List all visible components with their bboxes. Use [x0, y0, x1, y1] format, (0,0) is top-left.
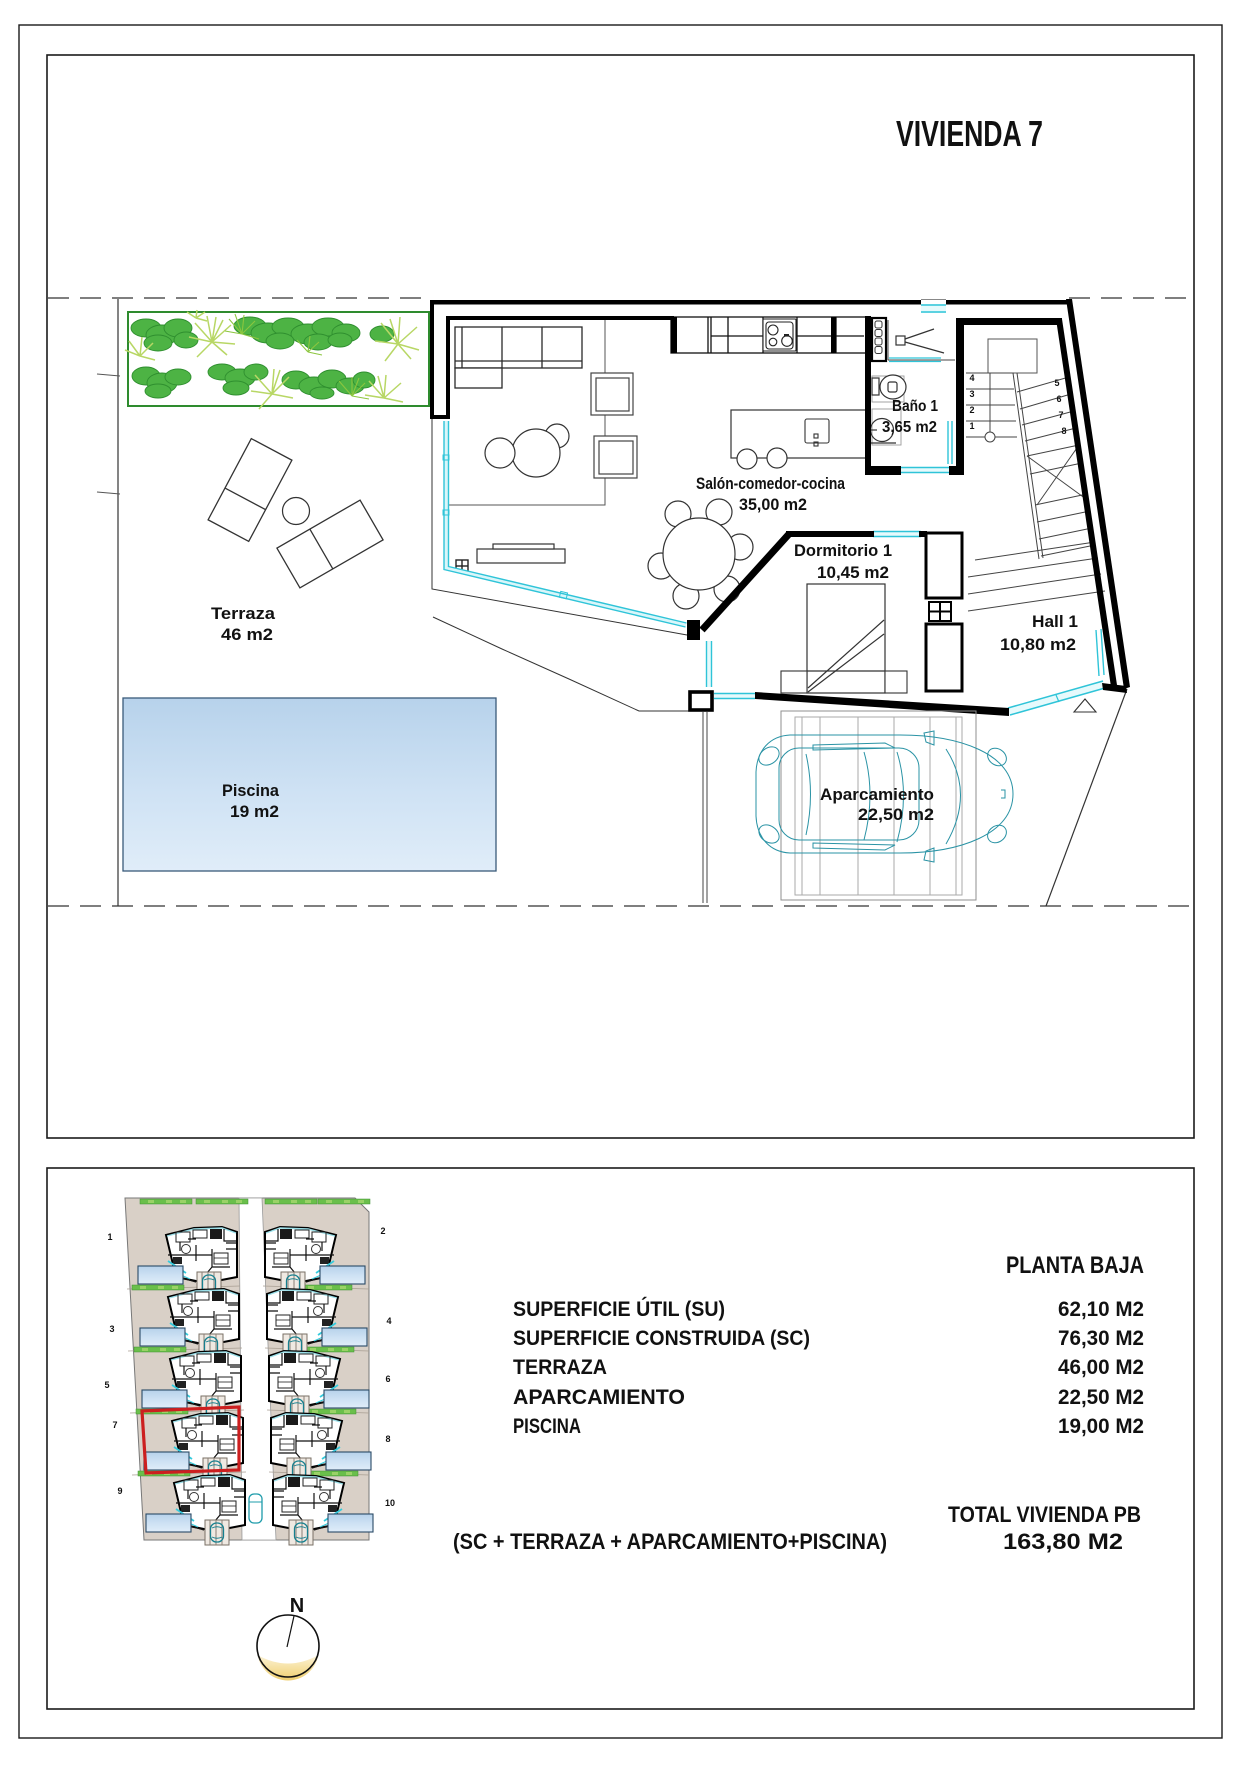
svg-text:Aparcamiento: Aparcamiento [820, 785, 934, 804]
svg-text:2: 2 [969, 405, 974, 415]
svg-text:163,80 M2: 163,80 M2 [1003, 1529, 1123, 1554]
svg-text:6: 6 [1056, 394, 1061, 404]
svg-text:19,00 M2: 19,00 M2 [1058, 1415, 1144, 1438]
svg-text:(SC + TERRAZA + APARCAMIENTO+P: (SC + TERRAZA + APARCAMIENTO+PISCINA) [453, 1529, 887, 1554]
svg-text:Hall 1: Hall 1 [1032, 612, 1078, 631]
svg-text:5: 5 [1054, 378, 1059, 388]
svg-text:46,00 M2: 46,00 M2 [1058, 1356, 1144, 1379]
svg-text:3: 3 [969, 389, 974, 399]
svg-text:Terraza: Terraza [211, 604, 276, 623]
svg-text:22,50 M2: 22,50 M2 [1058, 1386, 1144, 1409]
svg-text:Piscina: Piscina [222, 781, 280, 800]
svg-text:1: 1 [107, 1232, 112, 1242]
svg-text:6: 6 [385, 1374, 390, 1384]
svg-text:SUPERFICIE ÚTIL (SU): SUPERFICIE ÚTIL (SU) [513, 1297, 725, 1321]
svg-text:10,80 m2: 10,80 m2 [1000, 635, 1076, 654]
svg-text:N: N [290, 1595, 304, 1617]
svg-text:5: 5 [104, 1380, 109, 1390]
svg-text:APARCAMIENTO: APARCAMIENTO [513, 1386, 685, 1409]
svg-text:46 m2: 46 m2 [221, 625, 273, 644]
svg-text:10: 10 [385, 1498, 395, 1508]
svg-text:TOTAL VIVIENDA PB: TOTAL VIVIENDA PB [948, 1502, 1141, 1527]
svg-text:7: 7 [1058, 410, 1063, 420]
svg-text:4: 4 [969, 373, 974, 383]
svg-text:Dormitorio 1: Dormitorio 1 [794, 541, 892, 560]
svg-text:PISCINA: PISCINA [513, 1415, 581, 1438]
svg-text:Baño 1: Baño 1 [892, 398, 938, 415]
svg-text:8: 8 [1061, 426, 1066, 436]
svg-text:Salón-comedor-cocina: Salón-comedor-cocina [696, 474, 845, 493]
svg-text:62,10 M2: 62,10 M2 [1058, 1298, 1144, 1321]
svg-text:10,45 m2: 10,45 m2 [817, 563, 889, 582]
svg-text:PLANTA BAJA: PLANTA BAJA [1006, 1252, 1144, 1279]
svg-text:TERRAZA: TERRAZA [513, 1356, 607, 1379]
svg-text:VIVIENDA 7: VIVIENDA 7 [896, 113, 1043, 154]
svg-text:2: 2 [380, 1226, 385, 1236]
svg-text:SUPERFICIE CONSTRUIDA (SC): SUPERFICIE CONSTRUIDA (SC) [513, 1327, 810, 1350]
svg-text:22,50 m2: 22,50 m2 [858, 805, 934, 824]
svg-text:9: 9 [117, 1486, 122, 1496]
svg-text:3,65 m2: 3,65 m2 [882, 419, 937, 436]
svg-text:19 m2: 19 m2 [230, 802, 279, 821]
svg-text:35,00 m2: 35,00 m2 [739, 495, 807, 514]
svg-text:7: 7 [112, 1420, 117, 1430]
svg-text:3: 3 [109, 1324, 114, 1334]
svg-text:4: 4 [386, 1316, 391, 1326]
svg-text:76,30 M2: 76,30 M2 [1058, 1327, 1144, 1350]
svg-text:8: 8 [385, 1434, 390, 1444]
svg-text:1: 1 [969, 421, 974, 431]
